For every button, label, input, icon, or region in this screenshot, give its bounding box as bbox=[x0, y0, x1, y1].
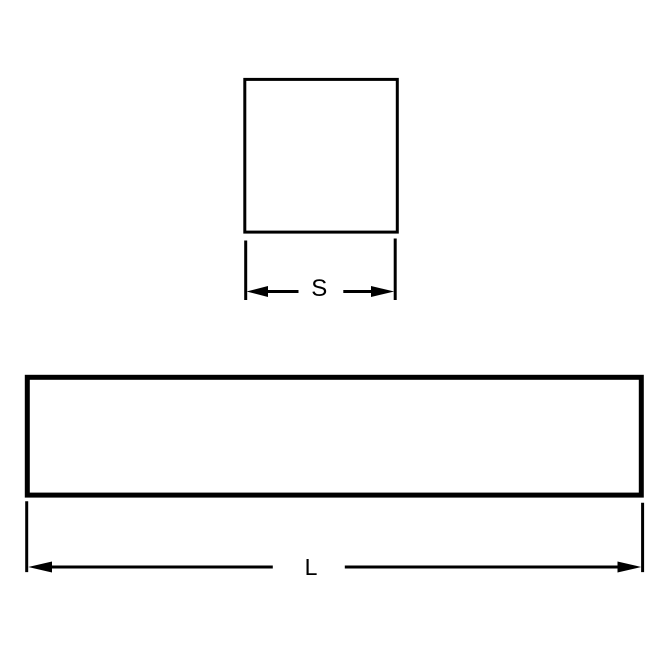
svg-text:S: S bbox=[311, 275, 327, 302]
svg-text:L: L bbox=[305, 554, 318, 580]
